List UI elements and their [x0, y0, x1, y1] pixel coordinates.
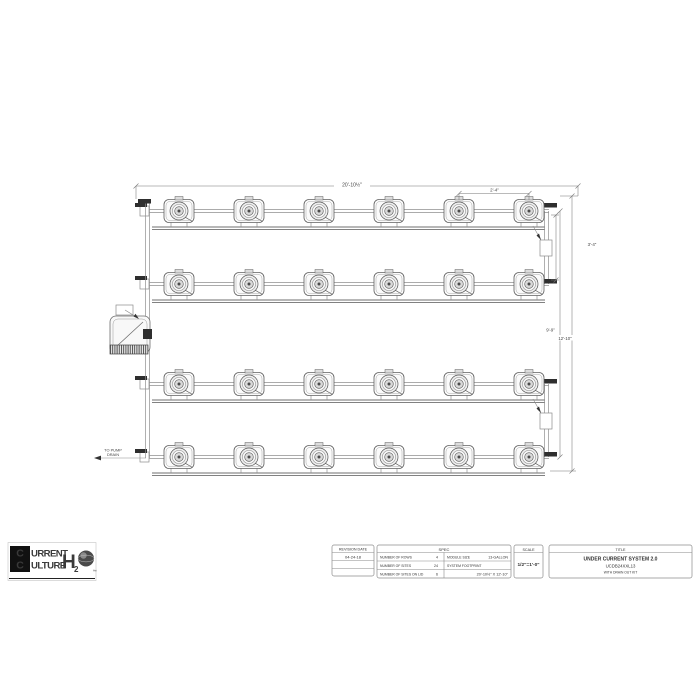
grow-module — [374, 370, 404, 401]
lid-port — [455, 270, 463, 274]
grow-module — [304, 443, 334, 474]
grow-module — [444, 370, 474, 401]
dim-col-spacing-label: 2'-4" — [490, 187, 499, 192]
spec-module-value: 13-GALLON — [488, 556, 508, 560]
lid-port — [525, 370, 533, 374]
leader-arrow — [537, 234, 542, 241]
row-tee-fitting — [140, 379, 149, 389]
revision-header: REVISION DATE — [339, 548, 368, 552]
grow-module — [444, 197, 474, 228]
title-block: REVISION DATE 04-24-18 SPEC NUMBER OF RO… — [332, 545, 692, 578]
leader-arrow — [537, 407, 542, 414]
logo-trademark: ™ — [93, 569, 97, 574]
spec-lid-label: NUMBER OF SITES ON LID — [380, 572, 424, 576]
spec-rows-label: NUMBER OF ROWS — [380, 556, 413, 560]
revision-date-value: 04-24-18 — [345, 554, 362, 559]
lid-port — [245, 443, 253, 447]
title-box: TITLE UNDER CURRENT SYSTEM 2.0 UCDB24XXL… — [549, 545, 692, 578]
lid-port — [315, 270, 323, 274]
lid-port — [525, 443, 533, 447]
lid-port — [315, 443, 323, 447]
scale-box: SCALE 1/2"=1'-0" — [514, 545, 543, 578]
title-header: TITLE — [615, 548, 626, 552]
lid-port — [245, 197, 253, 201]
lid-port — [315, 370, 323, 374]
grow-module — [164, 270, 194, 301]
logo-word2-initial: C — [16, 560, 24, 572]
pipe-network — [135, 203, 549, 476]
grow-module — [444, 270, 474, 301]
dim-overall-height-label: 12'-10" — [558, 336, 572, 341]
logo-sub2: 2 — [74, 565, 79, 574]
drain-arrow — [94, 456, 101, 461]
grow-module — [304, 370, 334, 401]
return-fitting — [540, 240, 552, 256]
row-tee-fitting — [140, 206, 149, 216]
grow-module — [304, 197, 334, 228]
lid-port — [525, 270, 533, 274]
lid-port — [245, 370, 253, 374]
spec-footprint-value: 20'-10½" X 12'-10" — [477, 572, 509, 576]
title-line1: UNDER CURRENT SYSTEM 2.0 — [584, 557, 658, 563]
manifold-union-fitting — [544, 379, 557, 384]
grow-module — [234, 370, 264, 401]
lid-port — [175, 370, 183, 374]
title-line3: WITH DRAIN OUT KIT — [604, 571, 637, 575]
grow-module — [374, 443, 404, 474]
grow-module — [514, 197, 544, 228]
grow-module — [304, 270, 334, 301]
current-culture-logo: C C URRENT ULTURE H 2 ™ — [8, 543, 97, 581]
manifold-union-fitting — [544, 452, 557, 457]
drain-label-line2: DRAIN — [107, 452, 119, 457]
drawing-sheet: TO PUMP DRAIN 20'-10½" 2'-4" 3'-4" 9' — [0, 0, 700, 700]
grow-module — [234, 270, 264, 301]
grow-module — [164, 443, 194, 474]
scale-header: SCALE — [522, 548, 535, 552]
system-drawing-svg: TO PUMP DRAIN 20'-10½" 2'-4" 3'-4" 9' — [0, 0, 700, 700]
return-fitting — [540, 413, 552, 429]
lid-port — [175, 197, 183, 201]
grow-module — [514, 270, 544, 301]
grow-module — [234, 443, 264, 474]
epicenter-outlet-fitting — [143, 329, 152, 339]
grow-module — [164, 370, 194, 401]
lid-port — [315, 197, 323, 201]
grow-module — [514, 370, 544, 401]
grow-module — [164, 197, 194, 228]
grow-modules — [164, 197, 544, 474]
grow-module — [374, 270, 404, 301]
dimension-overall-width: 20'-10½" — [134, 182, 581, 200]
logo-globe-icon — [78, 551, 94, 567]
grow-module — [444, 443, 474, 474]
scale-value: 1/2"=1'-0" — [517, 562, 539, 568]
water-pump — [110, 345, 148, 354]
lid-port — [385, 370, 393, 374]
logo-word1-initial: C — [16, 548, 24, 560]
grow-module — [234, 197, 264, 228]
spec-module-label: MODULE SIZE — [447, 556, 471, 560]
dim-overall-width-label: 20'-10½" — [342, 182, 362, 189]
title-line2: UCDB24XXL13 — [606, 564, 636, 569]
lid-port — [455, 370, 463, 374]
spec-rows-value: 4 — [436, 556, 438, 560]
grow-module — [514, 443, 544, 474]
lid-port — [455, 443, 463, 447]
lid-port — [385, 270, 393, 274]
manifold-union-fitting — [138, 199, 151, 204]
dim-row-spacing-label: 3'-4" — [588, 242, 597, 247]
spec-sites-label: NUMBER OF SITES — [380, 564, 412, 568]
spec-footprint-label: SYSTEM FOOTPRINT — [447, 564, 481, 568]
grow-module — [374, 197, 404, 228]
lid-port — [385, 197, 393, 201]
spec-sites-value: 24 — [434, 564, 438, 568]
row-tee-fitting — [140, 452, 149, 462]
lid-port — [245, 270, 253, 274]
spec-header: SPEC — [439, 547, 450, 552]
dimension-overall-height: 12'-10" — [550, 194, 578, 474]
lid-port — [175, 443, 183, 447]
dimension-column-spacing: 2'-4" — [457, 187, 532, 200]
lid-port — [175, 270, 183, 274]
dimension-row-spacing: 3'-4" — [551, 213, 597, 283]
revision-date-box: REVISION DATE 04-24-18 — [332, 545, 374, 576]
spec-lid-value: 6 — [436, 572, 438, 576]
manifold-union-fitting — [544, 203, 557, 208]
lid-port — [385, 443, 393, 447]
spec-box: SPEC NUMBER OF ROWS 4 NUMBER OF SITES 24… — [377, 545, 511, 578]
row-tee-fitting — [140, 279, 149, 289]
dim-inner-height-label: 9'-9" — [546, 328, 555, 333]
